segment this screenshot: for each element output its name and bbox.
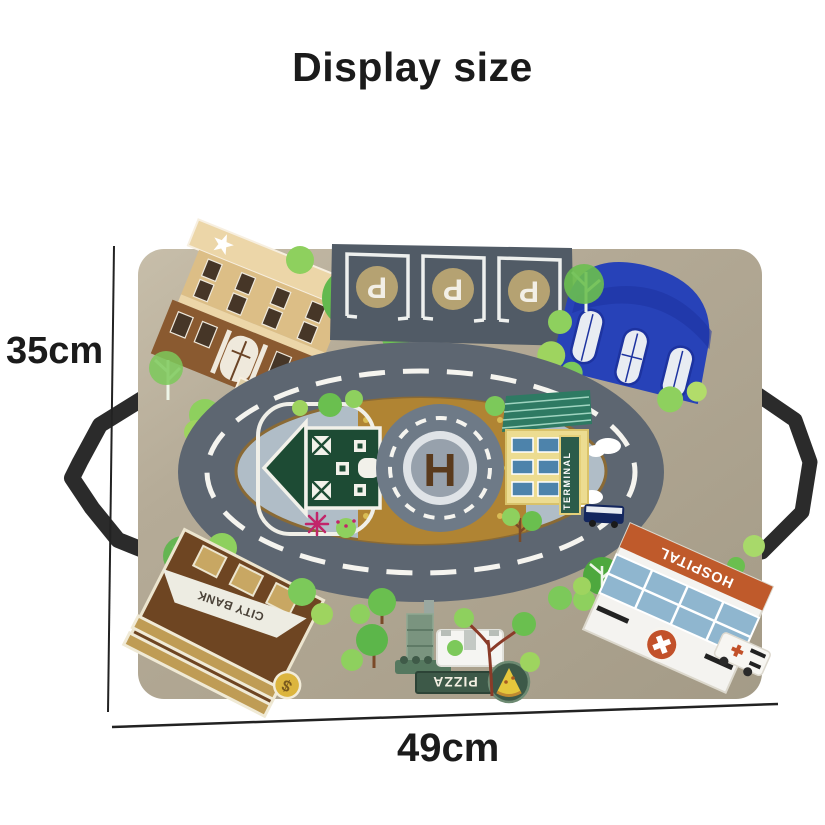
terminal-sign-text: TERMINAL xyxy=(562,452,572,511)
right-handle xyxy=(754,392,810,552)
product-image: Display size 35cm 49cm xyxy=(0,0,825,825)
parking-lot: P P P xyxy=(330,244,574,346)
height-dimension-line xyxy=(108,246,114,712)
helipad-letter: H xyxy=(423,444,456,496)
terminal-building: TERMINAL xyxy=(502,390,592,514)
parking-letter: P xyxy=(367,271,387,304)
parking-letter: P xyxy=(519,275,539,308)
pizza-sign-text: PIZZA xyxy=(432,674,477,690)
window-tab xyxy=(489,630,499,636)
window-tab xyxy=(441,630,451,636)
width-dimension-line xyxy=(112,704,778,727)
playmat-illustration: P P P xyxy=(0,0,825,825)
helipad: H xyxy=(376,404,504,532)
parking-letter: P xyxy=(443,273,463,306)
storefront-door xyxy=(464,630,476,650)
